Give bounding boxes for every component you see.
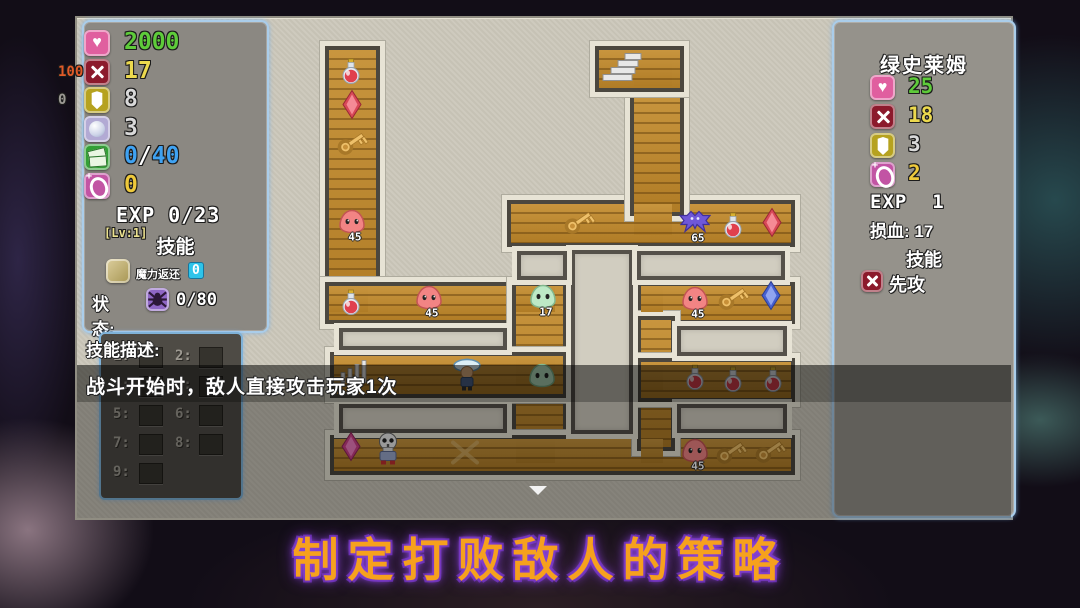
enemy-skills-header: 技能 — [834, 246, 1014, 272]
monster-stat-label: 45 — [348, 230, 361, 243]
slime-green-sprite: 17 — [528, 284, 558, 315]
tutorial-banner: 制定打败敌人的策略 — [0, 524, 1080, 590]
stat-prefix: 0 — [58, 92, 82, 108]
enemy-damage: 损血: 17 — [870, 217, 933, 242]
skill-description-title: 技能描述: — [86, 336, 160, 361]
key-sprite — [716, 283, 750, 318]
potion-sprite — [340, 59, 362, 90]
stat-value: 0/40 — [124, 143, 179, 169]
potion-sprite — [722, 213, 744, 244]
attack-icon — [861, 270, 883, 292]
dim-overlay-lower — [77, 402, 1011, 518]
stat-value: 2 — [908, 161, 921, 185]
stat-value: 2000 — [124, 29, 179, 55]
stairs-sprite — [601, 52, 643, 93]
stat-value: 8 — [124, 86, 138, 112]
player-stats-panel: ♥2000100170830/40+0 EXP 0/23 [Lv:1] 技能 魔… — [82, 20, 269, 333]
skill-description-text: 战斗开始时，敌人直接攻击玩家1次 — [86, 372, 398, 399]
stat-value: 17 — [124, 58, 152, 84]
orb-icon — [84, 116, 110, 142]
shield-icon — [870, 133, 895, 158]
stat-value: 3 — [908, 132, 921, 156]
magic-return-skill-icon — [106, 259, 130, 283]
skill-count-badge: 0 — [188, 262, 204, 279]
shield-icon — [84, 87, 110, 113]
stat-value: 18 — [908, 103, 933, 127]
scroll-down-indicator[interactable] — [529, 486, 547, 495]
bat-sprite: 65 — [679, 210, 711, 241]
stat-value: 25 — [908, 74, 933, 98]
heart-icon: ♥ — [870, 75, 895, 100]
player-exp: EXP 0/23 — [116, 203, 220, 227]
slime-red-sprite: 45 — [680, 286, 710, 317]
monster-stat-label: 45 — [691, 307, 704, 320]
stat-value: 0 — [124, 172, 138, 198]
potion-sprite — [340, 290, 362, 321]
monster-stat-label: 45 — [425, 306, 438, 319]
skills-header: 技能 — [84, 232, 267, 259]
monster-stat-label: 17 — [539, 305, 552, 318]
status-value: 0/80 — [176, 290, 217, 310]
stat-prefix: 100 — [58, 64, 82, 80]
skill-name: 魔力返还 — [136, 266, 180, 282]
spider-status-icon — [146, 288, 169, 311]
slime-red-sprite: 45 — [414, 285, 444, 316]
enemy-skill-name: 先攻 — [889, 271, 925, 297]
slime-red-sprite: 45 — [337, 209, 367, 240]
key-sprite — [335, 128, 369, 163]
money-icon — [84, 144, 110, 170]
attack-icon — [870, 104, 895, 129]
heart-icon: ♥ — [84, 30, 110, 56]
gem-red-sprite — [761, 208, 783, 243]
gem-red-sprite — [341, 90, 363, 125]
key-sprite — [562, 207, 596, 242]
enemy-exp: EXP 1 — [870, 191, 945, 213]
game-screen: 454517654545 技能描述: 战斗开始时，敌人直接攻击玩家1次 ♥200… — [75, 16, 1013, 520]
stat-value: 3 — [124, 115, 138, 141]
coin-icon: + — [84, 173, 110, 199]
coin-icon: + — [870, 162, 895, 187]
gem-blue-sprite — [760, 281, 782, 316]
attack-icon — [84, 59, 110, 85]
slot-label: 2: — [175, 348, 192, 364]
monster-stat-label: 65 — [691, 231, 704, 244]
